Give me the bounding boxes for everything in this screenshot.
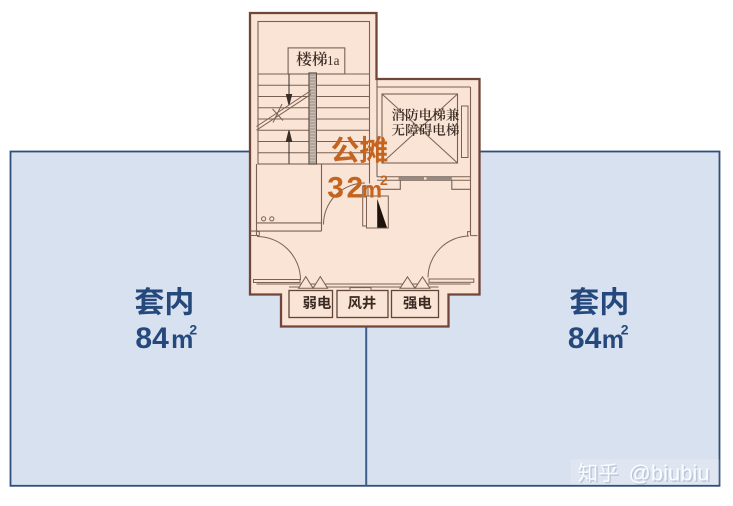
svg-text:84: 84 bbox=[135, 322, 169, 355]
svg-text:32: 32 bbox=[327, 172, 365, 205]
svg-text:2: 2 bbox=[189, 322, 197, 338]
svg-text:@biubiu: @biubiu bbox=[629, 460, 710, 485]
svg-text:84: 84 bbox=[568, 322, 602, 355]
svg-text:2: 2 bbox=[621, 322, 629, 338]
svg-text:m: m bbox=[362, 177, 382, 203]
svg-text:1a: 1a bbox=[327, 53, 340, 68]
svg-text:2: 2 bbox=[380, 172, 388, 188]
